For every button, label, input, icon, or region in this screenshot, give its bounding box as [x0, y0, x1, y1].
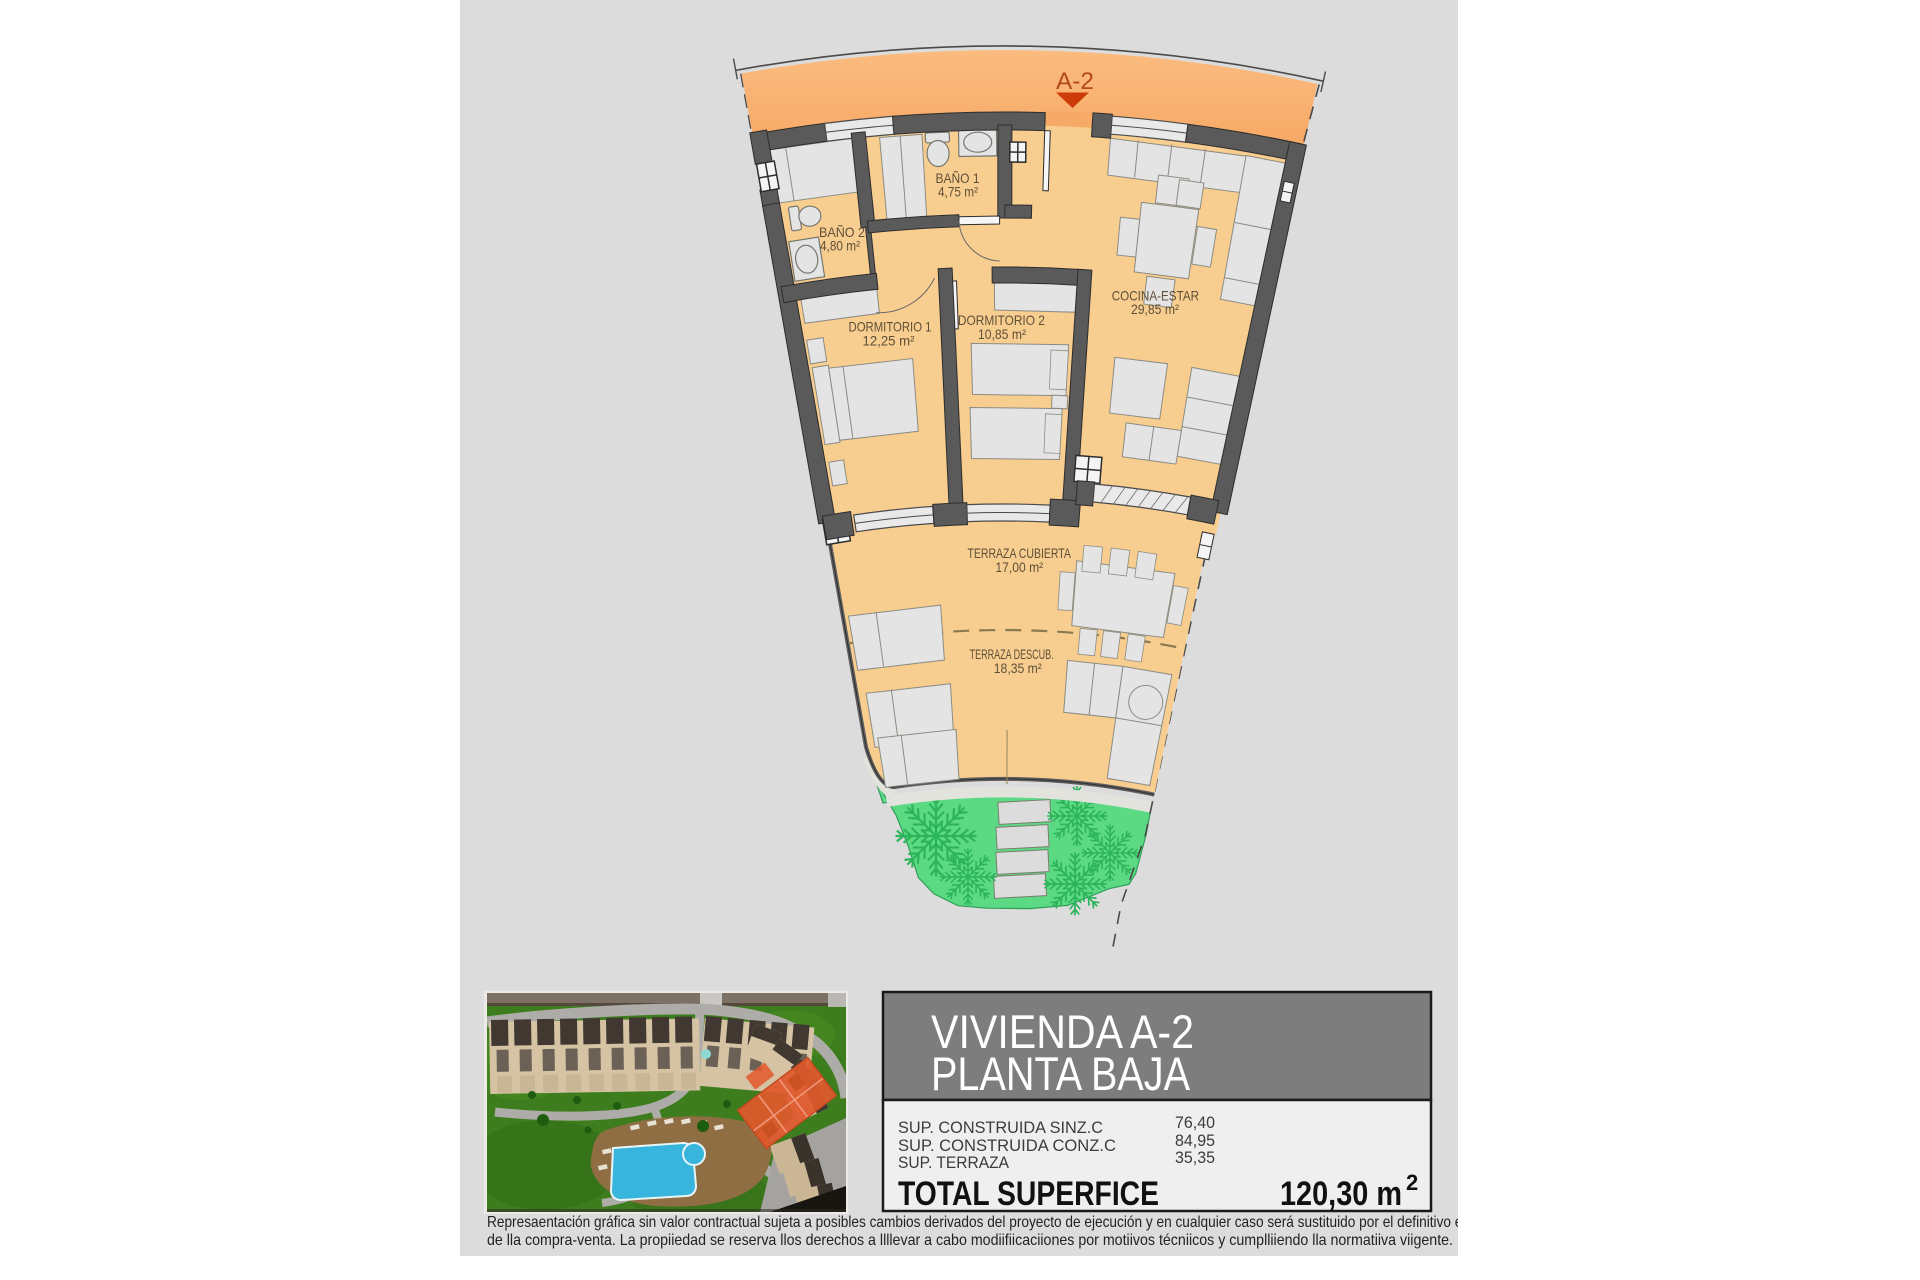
- svg-text:TOTAL SUPERFICE: TOTAL SUPERFICE: [898, 1175, 1159, 1213]
- svg-text:SUP. TERRAZA: SUP. TERRAZA: [898, 1153, 1010, 1172]
- svg-text:Represaentación gráfica sin va: Represaentación gráfica sin valor contra…: [487, 1214, 1470, 1231]
- svg-text:35,35: 35,35: [1175, 1148, 1215, 1167]
- svg-text:4,80 m²: 4,80 m²: [820, 238, 860, 254]
- svg-text:de lla compra-venta. La propii: de lla compra-venta. La propiiedad se re…: [487, 1232, 1453, 1249]
- svg-text:4,75 m²: 4,75 m²: [938, 184, 978, 200]
- svg-text:SUP. CONSTRUIDA SINZ.C: SUP. CONSTRUIDA SINZ.C: [898, 1118, 1103, 1137]
- svg-text:76,40: 76,40: [1175, 1113, 1215, 1132]
- svg-text:10,85 m²: 10,85 m²: [978, 326, 1026, 342]
- svg-text:PLANTA BAJA: PLANTA BAJA: [931, 1048, 1190, 1101]
- svg-text:18,35 m²: 18,35 m²: [994, 660, 1042, 676]
- svg-text:2: 2: [1406, 1170, 1418, 1195]
- svg-text:A-2: A-2: [1056, 68, 1094, 95]
- svg-text:120,30 m: 120,30 m: [1280, 1175, 1402, 1213]
- svg-text:12,25 m²: 12,25 m²: [863, 333, 915, 349]
- svg-text:29,85 m²: 29,85 m²: [1131, 301, 1179, 317]
- svg-text:17,00 m²: 17,00 m²: [995, 559, 1043, 575]
